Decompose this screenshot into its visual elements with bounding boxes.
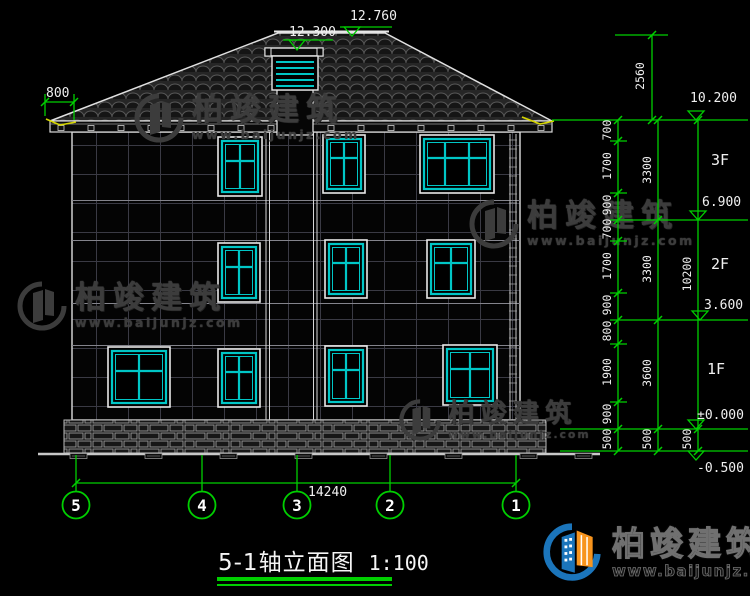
axis-bubble-4: 4	[188, 496, 216, 515]
elevation-drawing-sheet: 柏竣建筑 www.baijunjz.com 柏竣建筑 www.baijunjz.…	[0, 0, 750, 596]
elevation-6900-label: 6.900	[702, 195, 741, 210]
dim-1700-b: 1700	[600, 244, 614, 288]
floor-label-2f: 2F	[711, 255, 729, 273]
dim-10200: 10200	[680, 252, 694, 296]
title-text: 5-1轴立面图	[218, 543, 355, 577]
vent-elevation-label: 12.300	[289, 25, 336, 40]
brand-url: www.baijunjz.com	[612, 564, 750, 579]
axis-bubble-2: 2	[376, 496, 404, 515]
drawing-title: 5-1轴立面图 1:100	[218, 543, 429, 577]
dim-3600: 3600	[640, 351, 654, 395]
brand-footer: 柏竣建筑 www.baijunjz.com	[540, 522, 750, 584]
title-underline-thick	[217, 577, 392, 581]
axis-bubble-1: 1	[502, 496, 530, 515]
axis-bubble-5: 5	[62, 496, 90, 515]
ridge-elevation-label: 12.760	[350, 9, 397, 24]
eave-overhang-label: 800	[46, 86, 69, 101]
dim-2560: 2560	[633, 54, 647, 98]
dim-1700-a: 1700	[600, 144, 614, 188]
title-underline-thin	[217, 584, 392, 586]
elevation-3600-label: 3.600	[704, 298, 743, 313]
dim-3300-b: 3300	[640, 247, 654, 291]
elevation-neg500-label: -0.500	[697, 461, 744, 476]
total-width-label: 14240	[308, 485, 347, 500]
dim-500-a: 500	[600, 417, 614, 461]
floor-label-1f: 1F	[707, 360, 725, 378]
brand-name: 柏竣建筑	[612, 527, 750, 560]
dim-800-c: 800	[600, 309, 614, 353]
dim-500-b: 500	[640, 417, 654, 461]
dim-500-c: 500	[680, 417, 694, 461]
dim-1900-c: 1900	[600, 350, 614, 394]
elevation-zero-label: ±0.000	[697, 408, 744, 423]
title-scale: 1:100	[369, 551, 429, 575]
floor-label-3f: 3F	[711, 151, 729, 169]
dim-3300-a: 3300	[640, 148, 654, 192]
axis-bubble-3: 3	[283, 496, 311, 515]
elevation-10200-label: 10.200	[690, 91, 737, 106]
brand-logo-icon	[540, 522, 604, 584]
